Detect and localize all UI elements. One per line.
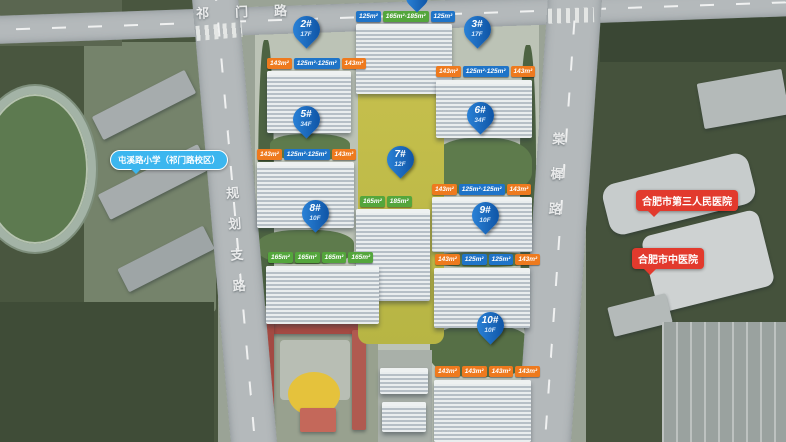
map-pin-building-5[interactable]: 5# 34F: [289, 106, 323, 148]
unit-tags-building-10: 143m² 143m² 143m² 143m²: [435, 366, 540, 377]
pin-building-number: 2#: [289, 19, 323, 30]
pin-building-number: 3#: [460, 19, 494, 30]
unit-tag: 143m²: [515, 366, 540, 377]
map-pin-building-9[interactable]: 9# 10F: [468, 202, 502, 244]
map-pin-building-10[interactable]: 10# 10F: [473, 312, 507, 354]
pin-building-number: 7#: [383, 149, 417, 160]
pin-floor-count: 17F: [289, 31, 323, 38]
map-pin-building-2[interactable]: 2# 17F: [289, 16, 323, 58]
unit-tag: 165m²·185m²: [383, 11, 429, 22]
landmark-school-bubble: 屯溪路小学（祁门路校区）: [110, 150, 228, 170]
map-pin-building-3[interactable]: 3# 17F: [460, 16, 494, 58]
unit-tag: 143m²: [511, 66, 536, 77]
map-pin-building-8[interactable]: 8# 10F: [298, 200, 332, 242]
unit-tag: 125m²: [431, 11, 456, 22]
unit-tags-building-5: 143m² 125m²·125m² 143m²: [257, 149, 356, 160]
unit-tag: 125m²·125m²: [459, 184, 505, 195]
unit-tag: 125m²·125m²: [463, 66, 509, 77]
trees-southwest: [0, 302, 214, 442]
unit-tag: 143m²: [436, 66, 461, 77]
landmark-hospital-third-bubble: 合肥市第三人民医院: [636, 190, 738, 211]
pin-building-number: 10#: [473, 315, 507, 326]
pin-floor-count: 34F: [463, 117, 497, 124]
unit-tag: 143m²: [435, 254, 460, 265]
unit-tag: 165m²: [348, 252, 373, 263]
unit-tags-building-1: 125m² 165m²·185m² 125m²: [356, 11, 455, 22]
unit-tag: 143m²: [342, 58, 367, 69]
unit-tag: 143m²: [515, 254, 540, 265]
pin-floor-count: 10F: [298, 215, 332, 222]
kindergarten-building: [352, 330, 366, 430]
unit-tag: 165m²: [268, 252, 293, 263]
unit-tag: 185m²: [387, 196, 412, 207]
play-court: [300, 408, 336, 432]
parking-lot-east: [662, 322, 786, 442]
unit-tag: 125m²: [462, 254, 487, 265]
unit-tags-building-6: 143m² 125m²·125m² 143m²: [432, 184, 531, 195]
landmark-hospital-tcm-bubble: 合肥市中医院: [632, 248, 704, 269]
map-pin-building-7[interactable]: 7# 12F: [383, 146, 417, 188]
pin-building-number: 6#: [463, 105, 497, 116]
pin-floor-count: 34F: [289, 121, 323, 128]
unit-tag: 143m²: [432, 184, 457, 195]
south-building: [382, 402, 426, 432]
unit-tags-building-2: 143m² 125m²·125m² 143m²: [267, 58, 366, 69]
pin-floor-count: 17F: [460, 31, 494, 38]
unit-tag: 143m²: [257, 149, 282, 160]
pin-building-number: 5#: [289, 109, 323, 120]
unit-tag: 125m²: [489, 254, 514, 265]
unit-tag: 165m²: [322, 252, 347, 263]
unit-tag: 143m²: [489, 366, 514, 377]
pin-floor-count: 12F: [383, 161, 417, 168]
unit-tag: 143m²: [332, 149, 357, 160]
unit-tag: 143m²: [435, 366, 460, 377]
unit-tag: 143m²: [462, 366, 487, 377]
unit-tags-building-8: 165m² 165m² 165m² 165m²: [268, 252, 373, 263]
unit-tag: 165m²: [295, 252, 320, 263]
unit-tag: 143m²: [267, 58, 292, 69]
south-building: [380, 368, 428, 394]
pin-building-number: 8#: [298, 203, 332, 214]
unit-tag: 143m²: [507, 184, 532, 195]
masterplan-aerial-map: 祁门路 规划支路 棠樨路 125m² 165m²·185m² 125m² 143…: [0, 0, 786, 442]
map-pin-building-6[interactable]: 6# 34F: [463, 102, 497, 144]
unit-tag: 125m²·125m²: [284, 149, 330, 160]
unit-tag: 125m²·125m²: [294, 58, 340, 69]
unit-tag: 125m²: [356, 11, 381, 22]
unit-tag: 165m²: [360, 196, 385, 207]
unit-tags-building-3: 143m² 125m²·125m² 143m²: [436, 66, 535, 77]
unit-tags-building-7: 165m² 185m²: [360, 196, 412, 207]
building-8: [266, 266, 379, 324]
unit-tags-building-9: 143m² 125m² 125m² 143m²: [435, 254, 540, 265]
pin-building-number: 9#: [468, 205, 502, 216]
building-10: [434, 380, 531, 442]
pin-floor-count: 10F: [473, 327, 507, 334]
pin-floor-count: 10F: [468, 217, 502, 224]
crosswalk: [548, 7, 594, 24]
